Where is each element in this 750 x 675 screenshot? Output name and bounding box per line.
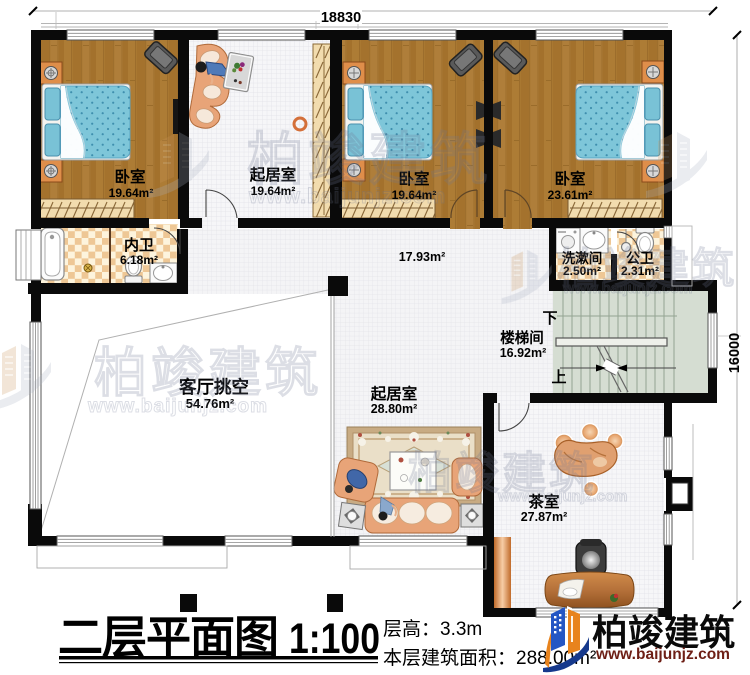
svg-text:卧室: 卧室: [554, 169, 585, 188]
svg-text:层高：3.3m: 层高：3.3m: [383, 618, 482, 640]
svg-text:www.baijunjz.com: www.baijunjz.com: [248, 185, 446, 208]
svg-text:www.baijunjz.com: www.baijunjz.com: [595, 646, 730, 663]
svg-text:楼梯间: 楼梯间: [500, 329, 544, 347]
svg-text:16.92m²: 16.92m²: [500, 346, 547, 360]
svg-text:27.87m²: 27.87m²: [521, 510, 568, 524]
svg-text:下: 下: [542, 310, 557, 327]
svg-text:28.80m²: 28.80m²: [371, 402, 418, 416]
svg-text:柏竣建筑: 柏竣建筑: [94, 344, 322, 403]
svg-text:起居室: 起居室: [370, 384, 418, 403]
svg-text:www.baijunjz.com: www.baijunjz.com: [497, 488, 627, 505]
svg-text:23.61m²: 23.61m²: [548, 188, 593, 202]
svg-text:19.64m²: 19.64m²: [109, 186, 154, 200]
svg-text:1:100: 1:100: [289, 615, 380, 663]
svg-text:上: 上: [551, 369, 566, 386]
svg-text:卧室: 卧室: [114, 167, 145, 186]
svg-text:二层平面图: 二层平面图: [58, 612, 278, 663]
svg-text:柏竣建筑: 柏竣建筑: [247, 128, 491, 192]
svg-text:18830: 18830: [321, 10, 361, 26]
svg-text:6.18m²: 6.18m²: [120, 253, 158, 267]
svg-text:www.baijunjz.com: www.baijunjz.com: [87, 396, 268, 417]
svg-text:17.93m²: 17.93m²: [399, 250, 446, 264]
svg-text:16000: 16000: [727, 333, 743, 373]
svg-text:内卫: 内卫: [124, 236, 154, 254]
svg-text:www.baijunjz.com: www.baijunjz.com: [562, 280, 692, 297]
